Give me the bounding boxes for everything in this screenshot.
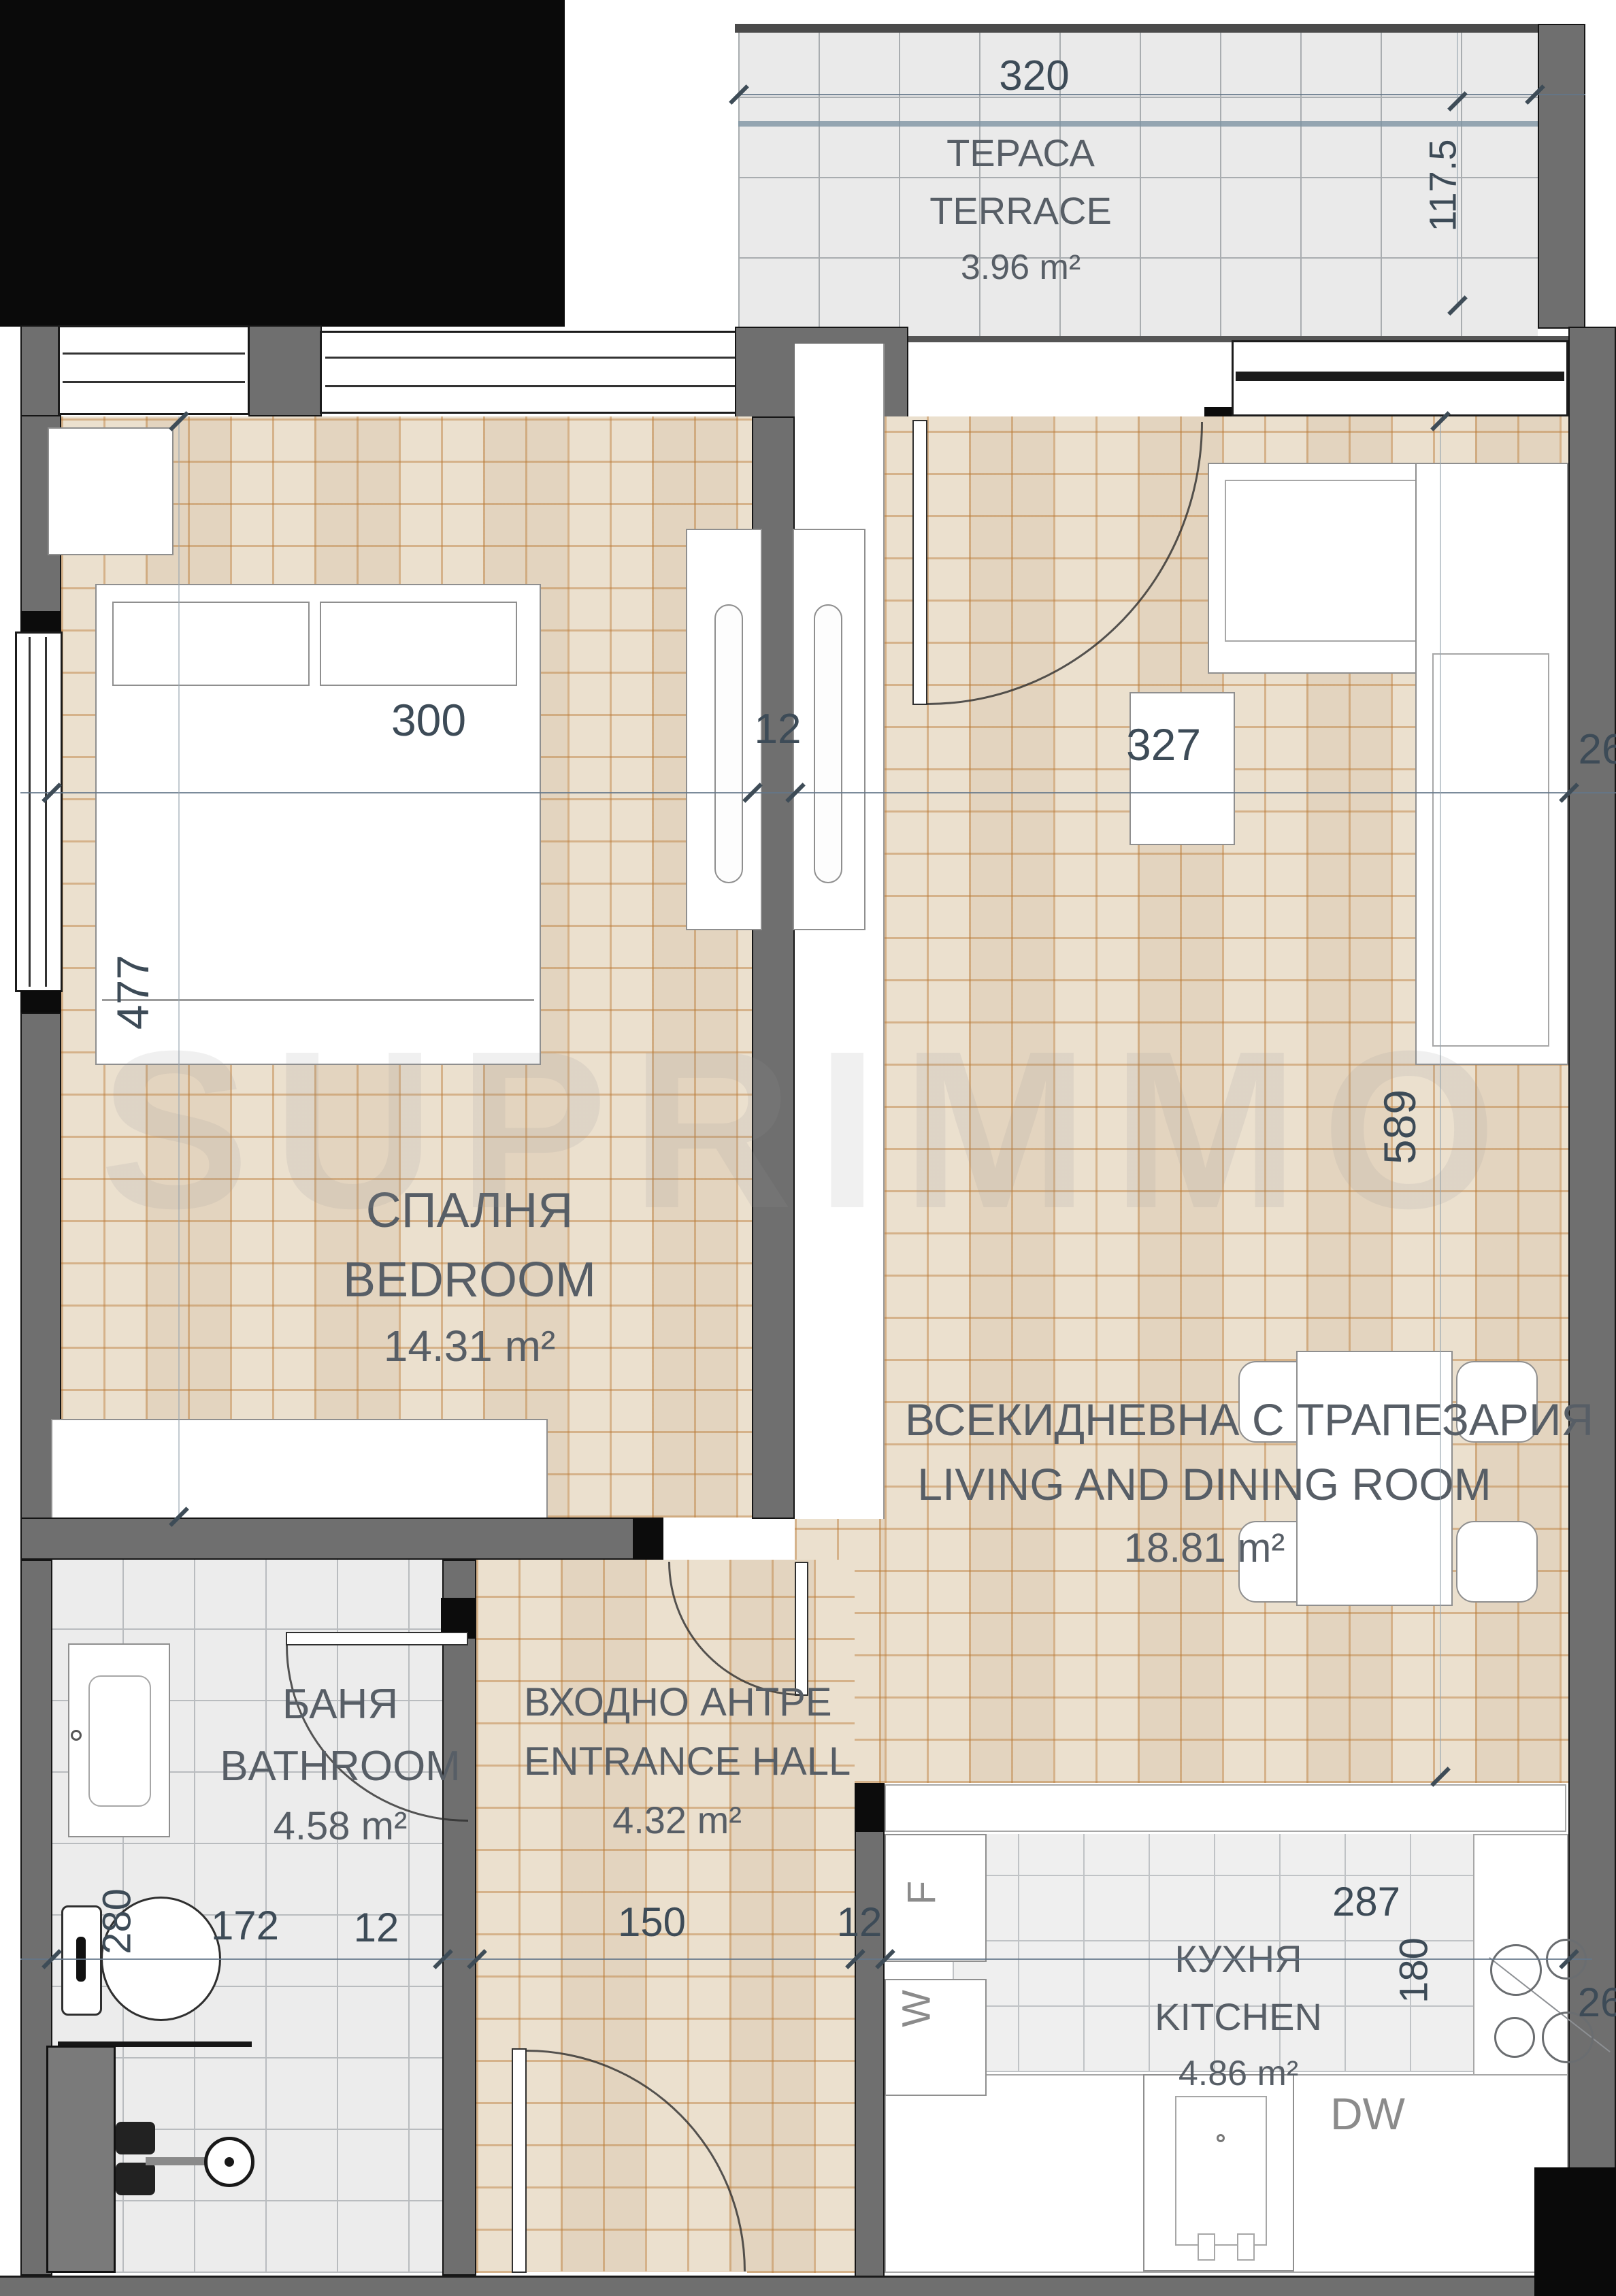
dim-bath-wall: 12 (346, 1904, 407, 1951)
bedroom-window-left (15, 632, 63, 992)
terrace-right-wall (1538, 24, 1585, 329)
radiator-cylinder (814, 604, 842, 883)
living-area: 18.81 m² (905, 1526, 1504, 1569)
dim-line-bottom (20, 1958, 1592, 1960)
bedroom-name-en: BEDROOM (286, 1255, 653, 1307)
terrace-name-en: TERRACE (871, 191, 1170, 231)
dim-bath-width: 172 (191, 1902, 299, 1949)
living-label: ВСЕКИДНЕВНА С ТРАПЕЗАРИЯ LIVING AND DINI… (905, 1396, 1504, 1587)
window-cap (20, 991, 61, 1013)
bathroom-area: 4.58 m² (197, 1806, 483, 1848)
kitchen-label: КУХНЯ KITCHEN 4.86 m² (1126, 1939, 1351, 2110)
wall-hall-kitchen (855, 1783, 885, 2283)
watermark: SUPRIMMO (82, 1000, 1538, 1259)
kitchen-area: 4.86 m² (1126, 2055, 1351, 2093)
kitchen-name-en: KITCHEN (1126, 1997, 1351, 2037)
dim-hall-wall: 12 (829, 1899, 890, 1946)
terrace-door-leaf (912, 420, 927, 705)
bathroom-door-leaf (286, 1632, 468, 1645)
terrace-glazing-line (738, 121, 1538, 127)
fridge-label: F (900, 1869, 945, 1917)
bedroom-area: 14.31 m² (286, 1324, 653, 1369)
cooktop-burner (1490, 1944, 1542, 1996)
terrace-label: ТЕРАСА TERRACE 3.96 m² (871, 133, 1170, 304)
radiator-cylinder (714, 604, 743, 883)
living-window-glass (1236, 372, 1564, 381)
hall-name-en: ENTRANCE HALL (524, 1741, 830, 1783)
pillow (320, 602, 517, 686)
faucet-icon (71, 1730, 82, 1741)
wall-bottom (0, 2276, 1616, 2296)
dim-wall-right-top: 26 (1574, 725, 1616, 774)
wall-bedroom-bottom (20, 1518, 663, 1560)
kitchen-upper-cabinets (885, 1784, 1566, 1832)
door-jamb-cap (633, 1518, 663, 1560)
washbasin (88, 1675, 151, 1807)
sink-tap (1198, 2233, 1215, 2261)
pillow (112, 602, 310, 686)
bedroom-window-1 (58, 325, 250, 415)
terrace-top-edge (735, 24, 1585, 33)
window-mullion (45, 637, 47, 987)
wall-top-bedroom-mid (248, 325, 322, 416)
living-name-bg: ВСЕКИДНЕВНА С ТРАПЕЗАРИЯ (905, 1396, 1504, 1443)
bedroom-window-2 (320, 331, 742, 414)
wall-top-left-stub (20, 325, 61, 416)
bathroom-name-en: BATHROOM (197, 1744, 483, 1788)
shower-valve-icon (116, 2163, 155, 2195)
sink-tap (1237, 2233, 1255, 2261)
sofa-right-cushion (1432, 653, 1549, 1047)
shower-valve-icon (116, 2122, 155, 2154)
bathroom-name-bg: БАНЯ (197, 1682, 483, 1726)
shaft-block-bottom-right (1534, 2167, 1616, 2296)
shaft (795, 344, 885, 1519)
shower-wall-block (46, 2046, 116, 2273)
bathroom-label: БАНЯ BATHROOM 4.58 m² (197, 1682, 483, 1865)
window-cap (20, 611, 61, 633)
dim-hall-width: 150 (604, 1899, 699, 1946)
window-mullion (29, 637, 31, 987)
cooktop-burner (1494, 2017, 1535, 2058)
dim-living-width: 327 (1109, 719, 1218, 770)
window-mullion (63, 381, 245, 383)
shower-head-dot (225, 2157, 234, 2167)
hall-name-bg: ВХОДНО АНТРЕ (524, 1682, 830, 1724)
living-name-en: LIVING AND DINING ROOM (905, 1461, 1504, 1508)
hall-label: ВХОДНО АНТРЕ ENTRANCE HALL 4.32 m² (524, 1682, 830, 1858)
dresser (51, 1419, 548, 1519)
washer-label: W (894, 1985, 940, 2033)
dim-wall-right-bottom: 26 (1573, 1979, 1616, 2026)
kitchen-sink (1175, 2096, 1267, 2246)
dim-terrace-width: 320 (980, 52, 1089, 100)
dim-bath-depth: 280 (95, 1867, 140, 1976)
dim-line-terrace (738, 94, 1585, 95)
hall-area: 4.32 m² (524, 1801, 830, 1841)
sink-drain-icon (1217, 2134, 1225, 2142)
window-mullion (325, 357, 736, 359)
entrance-door-leaf (512, 2048, 527, 2273)
exterior-block (0, 0, 565, 327)
dim-terrace-depth: 117.5 (1421, 111, 1465, 261)
dim-line-mid (20, 792, 1616, 793)
wall-cap (855, 1783, 885, 1832)
dim-kitchen-depth: 180 (1391, 1916, 1437, 2025)
window-mullion (63, 352, 245, 355)
dim-bedroom-width: 300 (374, 694, 483, 746)
window-mullion (325, 385, 736, 387)
ext-line-bedroom (178, 416, 180, 1519)
terrace-area: 3.96 m² (871, 249, 1170, 286)
floor-plan: 320 117.5 ТЕРАСА TERRACE 3.96 m² (0, 0, 1616, 2296)
terrace-name-bg: ТЕРАСА (871, 133, 1170, 174)
dim-wall-mid: 12 (747, 705, 808, 753)
nightstand (48, 427, 174, 555)
